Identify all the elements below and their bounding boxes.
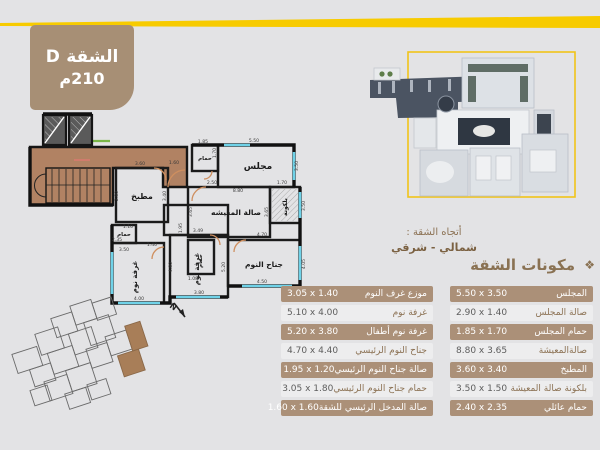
svg-text:جناح النوم: جناح النوم bbox=[245, 260, 283, 269]
svg-text:3.65: 3.65 bbox=[264, 207, 270, 217]
table-row: المجلس5.50 x 3.50 bbox=[450, 286, 593, 302]
svg-text:2.50: 2.50 bbox=[207, 180, 217, 186]
svg-text:4.70: 4.70 bbox=[257, 232, 267, 238]
room-size: 1.95 x 1.20 bbox=[283, 365, 334, 375]
svg-text:1.08: 1.08 bbox=[188, 276, 198, 282]
components-table-right: المجلس5.50 x 3.50 صالة المجلس2.90 x 1.40… bbox=[450, 286, 593, 419]
table-row: صالة جناح النوم الرئيسي1.95 x 1.20 bbox=[281, 362, 433, 378]
render-shapes bbox=[370, 58, 568, 196]
apartment-area: 210م bbox=[30, 69, 134, 88]
svg-text:1.10: 1.10 bbox=[123, 224, 133, 230]
svg-text:4.50: 4.50 bbox=[257, 279, 267, 285]
svg-text:صالة المعيشه: صالة المعيشه bbox=[211, 208, 261, 217]
room-name: موزع غرف النوم bbox=[365, 289, 427, 299]
room-size: 3.60 x 3.40 bbox=[456, 365, 507, 375]
svg-text:1.40: 1.40 bbox=[147, 242, 157, 248]
svg-text:8.80: 8.80 bbox=[233, 188, 243, 194]
room-name: حمام جناح النوم الرئيسي bbox=[333, 384, 427, 394]
orientation-block: أتجاه الشقة : شمالي - شرقي bbox=[388, 227, 480, 254]
svg-text:3.40: 3.40 bbox=[162, 191, 168, 201]
room-name: صالة المجلس bbox=[535, 308, 587, 318]
svg-text:3.49: 3.49 bbox=[193, 228, 203, 234]
svg-text:3.80: 3.80 bbox=[194, 290, 204, 296]
apartment-name: الشقة D bbox=[30, 47, 134, 67]
room-size: 5.10 x 4.00 bbox=[287, 308, 338, 318]
table-row: بلكونة صالة المعيشة3.50 x 1.50 bbox=[450, 381, 593, 397]
svg-text:4.05: 4.05 bbox=[301, 259, 307, 269]
orientation-value: شمالي - شرقي bbox=[388, 241, 480, 254]
svg-text:3.65: 3.65 bbox=[188, 207, 194, 217]
room-name: حمام عائلي bbox=[544, 403, 587, 413]
room-name: صالة المدخل الرئيسي للشقة bbox=[319, 403, 427, 413]
room-size: 2.40 x 2.35 bbox=[456, 403, 507, 413]
table-row: صالة المدخل الرئيسي للشقة1.60 x 1.60 bbox=[281, 400, 433, 416]
site-key-plan bbox=[0, 285, 150, 450]
table-row: جناح النوم الرئيسي4.70 x 4.40 bbox=[281, 343, 433, 359]
table-row: حمام المجلس1.85 x 1.70 bbox=[450, 324, 593, 340]
svg-text:1.85: 1.85 bbox=[198, 139, 208, 145]
elevator-shafts bbox=[43, 115, 92, 145]
table-row: صالةالمعيشة8.80 x 3.65 bbox=[450, 343, 593, 359]
svg-text:3.60: 3.60 bbox=[135, 161, 145, 167]
orientation-label: أتجاه الشقة : bbox=[388, 227, 480, 238]
room-name: حمام المجلس bbox=[534, 327, 587, 337]
components-header: ❖ مكونات الشقة bbox=[450, 256, 595, 274]
room-size: 3.05 x 1.40 bbox=[287, 289, 338, 299]
room-size: 5.50 x 3.50 bbox=[456, 289, 507, 299]
svg-text:مطبخ: مطبخ bbox=[131, 192, 153, 201]
room-size: 2.90 x 1.40 bbox=[456, 308, 507, 318]
svg-text:حمام: حمام bbox=[198, 156, 212, 162]
svg-text:1.60: 1.60 bbox=[169, 160, 179, 166]
apartment-title-banner: الشقة D 210م bbox=[30, 25, 134, 110]
render-3d-plan bbox=[362, 38, 597, 203]
components-table-left: موزع غرف النوم3.05 x 1.40 غرفة نوم5.10 x… bbox=[281, 286, 433, 419]
north-arrow: N bbox=[168, 301, 185, 317]
svg-text:3.50: 3.50 bbox=[119, 247, 129, 253]
svg-text:2.35: 2.35 bbox=[112, 237, 122, 243]
brochure-page: الشقة D 210م bbox=[0, 0, 600, 450]
table-row: المطبخ3.60 x 3.40 bbox=[450, 362, 593, 378]
svg-text:بلكونة: بلكونة bbox=[282, 198, 289, 216]
room-name: المجلس bbox=[556, 289, 587, 299]
svg-text:1.70: 1.70 bbox=[277, 180, 287, 186]
svg-text:4.80: 4.80 bbox=[168, 262, 174, 272]
room-name: جناح النوم الرئيسي bbox=[355, 346, 427, 356]
table-row: موزع غرف النوم3.05 x 1.40 bbox=[281, 286, 433, 302]
room-size: 5.20 x 3.80 bbox=[287, 327, 338, 337]
diamond-icon: ❖ bbox=[584, 258, 595, 272]
room-size: 4.70 x 4.40 bbox=[287, 346, 338, 356]
room-labels: مجلسمطبخصالة المعيشهبلكونةجناح النومغرفة… bbox=[117, 156, 289, 293]
svg-text:حمام: حمام bbox=[198, 254, 204, 268]
svg-text:5.20: 5.20 bbox=[221, 262, 227, 272]
room-name: غرفة نوم bbox=[393, 308, 427, 318]
room-name: بلكونة صالة المعيشة bbox=[511, 384, 587, 394]
room-name: صالة جناح النوم الرئيسي bbox=[334, 365, 427, 375]
room-size: 8.80 x 3.65 bbox=[456, 346, 507, 356]
svg-text:5.50: 5.50 bbox=[249, 138, 259, 144]
components-title: مكونات الشقة bbox=[470, 256, 575, 274]
table-row: حمام عائلي2.40 x 2.35 bbox=[450, 400, 593, 416]
room-name: غرفة نوم أطفال bbox=[366, 327, 427, 337]
svg-text:3.50: 3.50 bbox=[294, 161, 300, 171]
svg-text:1.95: 1.95 bbox=[178, 223, 184, 233]
svg-text:1.70: 1.70 bbox=[212, 148, 218, 158]
svg-text:3.50: 3.50 bbox=[301, 201, 307, 211]
table-row: حمام جناح النوم الرئيسي3.05 x 1.80 bbox=[281, 381, 433, 397]
table-row: غرفة نوم5.10 x 4.00 bbox=[281, 305, 433, 321]
room-size: 3.05 x 1.80 bbox=[282, 384, 333, 394]
room-size: 1.85 x 1.70 bbox=[456, 327, 507, 337]
table-row: صالة المجلس2.90 x 1.40 bbox=[450, 305, 593, 321]
svg-text:2.80: 2.80 bbox=[114, 191, 120, 201]
room-name: صالةالمعيشة bbox=[539, 346, 587, 356]
room-name: المطبخ bbox=[561, 365, 587, 375]
room-size: 1.60 x 1.60 bbox=[268, 403, 319, 413]
table-row: غرفة نوم أطفال5.20 x 3.80 bbox=[281, 324, 433, 340]
room-size: 3.50 x 1.50 bbox=[456, 384, 507, 394]
svg-text:مجلس: مجلس bbox=[244, 162, 272, 172]
